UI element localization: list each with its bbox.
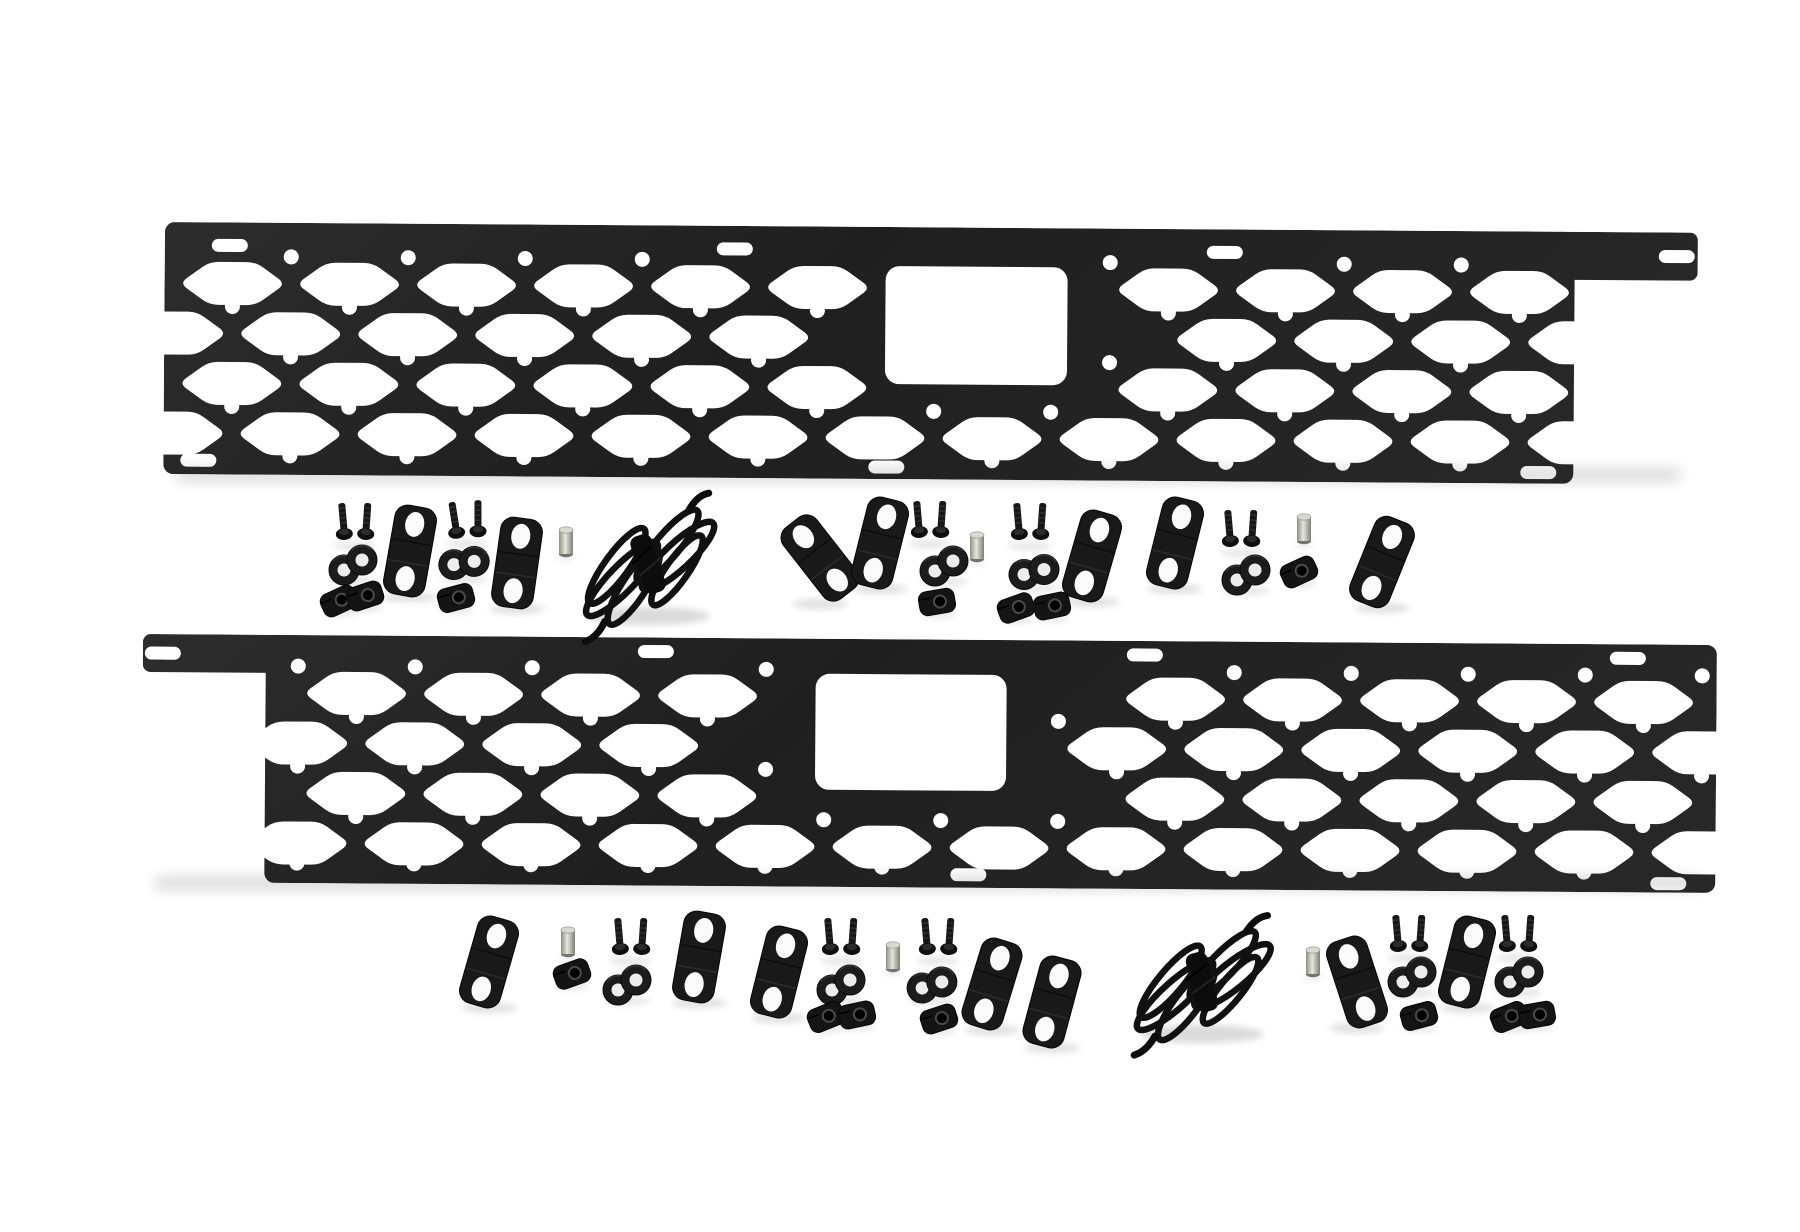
- item-shadow: [819, 957, 863, 965]
- molle-panel-bottom: [141, 634, 1717, 893]
- item-shadow: [1008, 542, 1052, 550]
- spacer-stud: [1297, 514, 1311, 544]
- product-photo-canvas: [40, 16, 1800, 1216]
- spacer-stud: [1306, 947, 1320, 977]
- spacer-stud: [886, 942, 900, 972]
- item-shadow: [445, 540, 489, 548]
- item-shadow: [792, 599, 848, 609]
- item-shadow: [908, 540, 952, 548]
- molle-panel-top: [163, 222, 1698, 485]
- photo-background: [40, 16, 1800, 1216]
- item-shadow: [916, 957, 960, 965]
- spacer-stud: [561, 927, 575, 957]
- product-image: [40, 16, 1800, 1216]
- spacer-stud: [970, 532, 984, 562]
- item-shadow: [609, 957, 653, 965]
- spacer-stud: [559, 527, 573, 557]
